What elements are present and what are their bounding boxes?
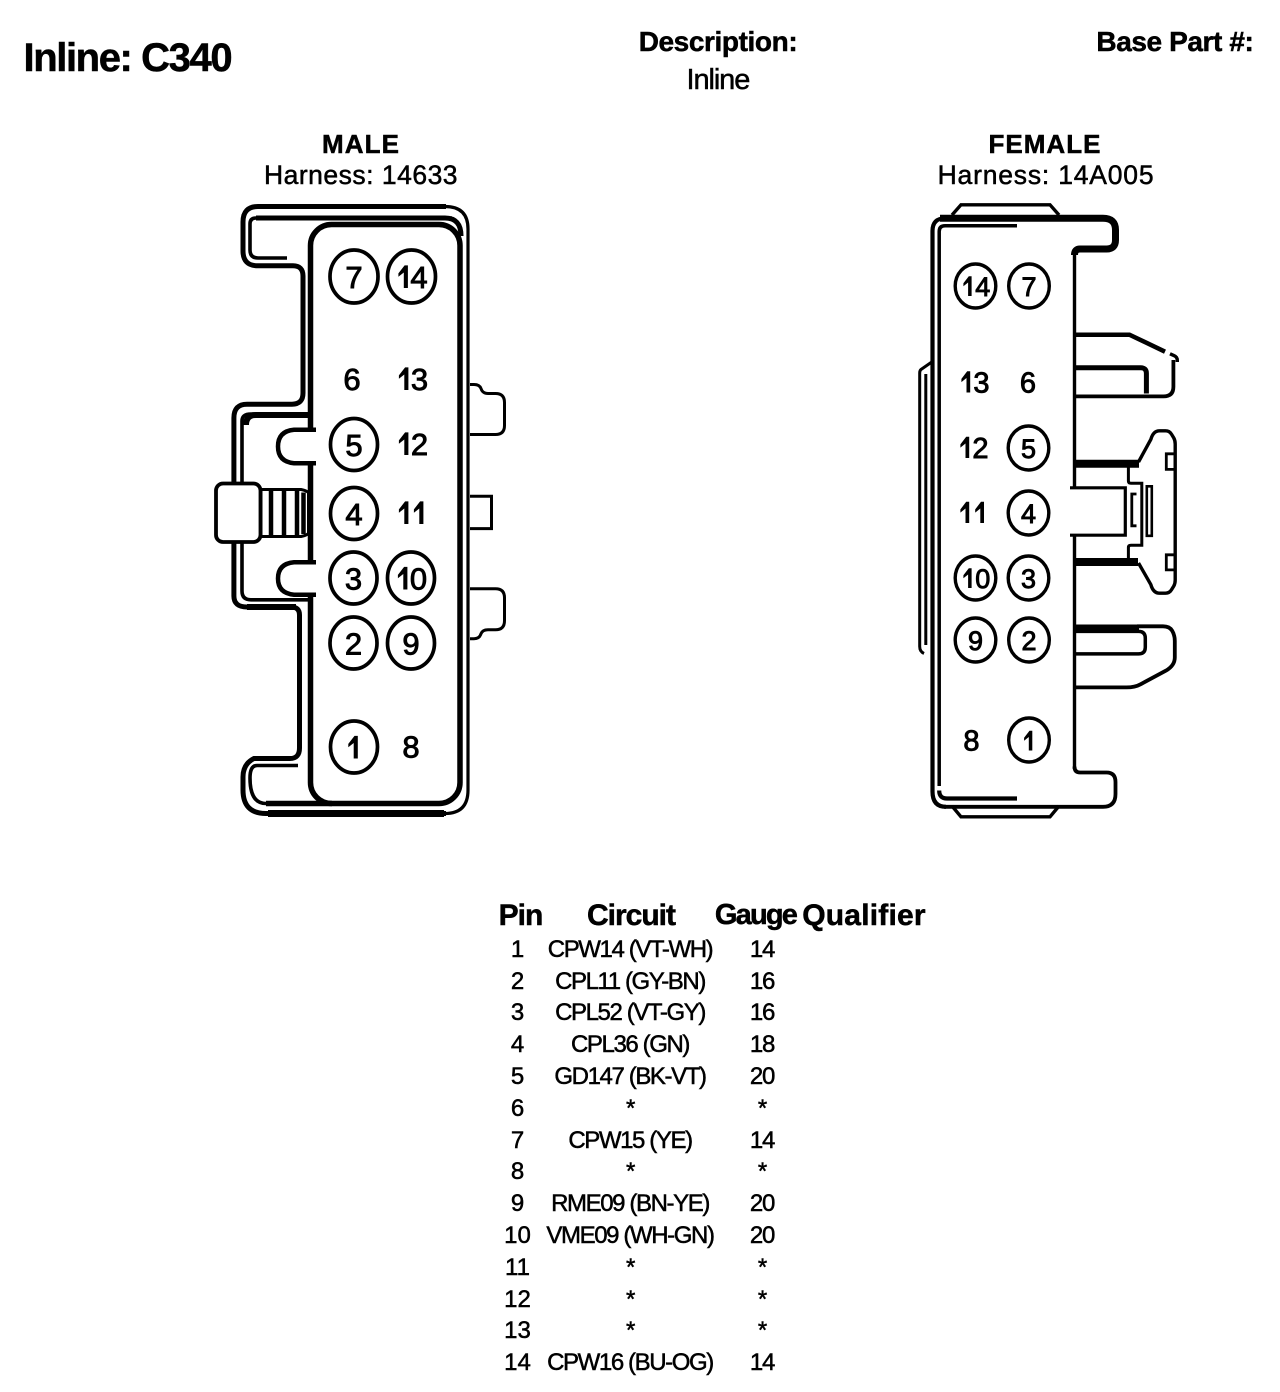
svg-text:7: 7 — [1021, 272, 1036, 302]
svg-text:7: 7 — [345, 260, 362, 295]
svg-text:4: 4 — [1021, 499, 1036, 529]
svg-text:4: 4 — [410, 260, 427, 295]
svg-text:0: 0 — [975, 564, 990, 594]
svg-text:4: 4 — [345, 497, 362, 532]
svg-text:9: 9 — [402, 627, 419, 662]
svg-text:2: 2 — [972, 433, 988, 465]
svg-text:8: 8 — [402, 730, 419, 765]
svg-text:6: 6 — [1020, 368, 1036, 400]
svg-text:3: 3 — [411, 362, 428, 397]
svg-text:3: 3 — [1021, 564, 1036, 594]
svg-text:2: 2 — [345, 627, 362, 662]
svg-text:5: 5 — [345, 428, 362, 463]
svg-text:2: 2 — [411, 427, 428, 462]
svg-text:2: 2 — [1021, 626, 1036, 656]
svg-text:6: 6 — [343, 362, 360, 397]
svg-text:8: 8 — [963, 726, 979, 758]
svg-text:5: 5 — [1021, 434, 1036, 464]
svg-text:4: 4 — [975, 272, 990, 302]
svg-text:9: 9 — [968, 626, 983, 656]
svg-text:0: 0 — [410, 562, 427, 597]
svg-text:3: 3 — [973, 368, 989, 400]
svg-text:3: 3 — [345, 562, 362, 597]
